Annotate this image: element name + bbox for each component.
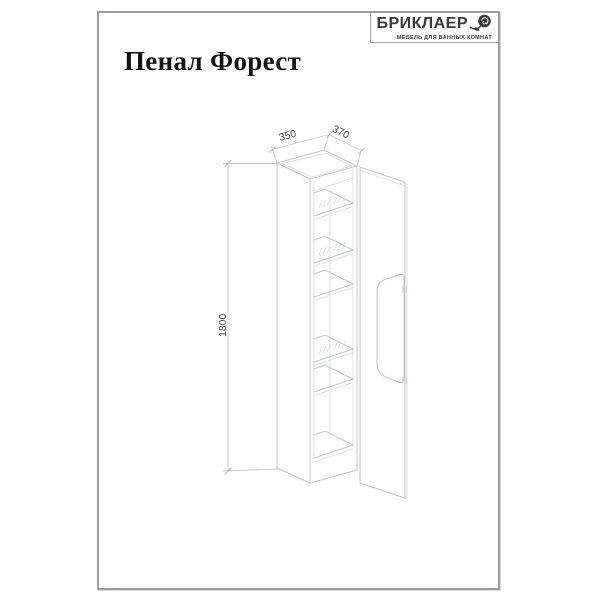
door-outline xyxy=(360,167,405,498)
shelf-thickness-edge xyxy=(314,383,353,396)
cabinet-technical-drawing: 1800 350 370 xyxy=(0,0,600,600)
shelf-surface-edge xyxy=(314,189,353,203)
cabinet-door-open xyxy=(360,167,407,499)
depth-tick-right xyxy=(359,148,365,154)
width-dimension-label: 350 xyxy=(278,128,298,144)
shelf-thickness-edge xyxy=(314,353,353,366)
spec-sheet-page: БРИКЛАЕР МЕБЕЛЬ ДЛЯ ВАННЫХ КОМНАТ Пенал … xyxy=(0,0,600,600)
cabinet-interior-top-edge xyxy=(314,178,353,191)
dimension-depth: 370 xyxy=(329,123,365,166)
solid-shelf-2 xyxy=(314,365,353,396)
shelf-thickness-edge xyxy=(314,288,353,301)
dimension-height: 1800 xyxy=(217,160,279,475)
width-tick-left xyxy=(270,147,276,153)
shelf-front-edge xyxy=(314,250,353,263)
dimension-width: 350 xyxy=(270,128,333,163)
door-top-thickness xyxy=(360,171,404,186)
solid-shelf-1 xyxy=(314,270,353,301)
cabinet-body xyxy=(277,150,357,483)
depth-dimension-label: 370 xyxy=(330,123,351,142)
shelf-thickness-edge xyxy=(314,254,353,267)
shelf-surface-edge xyxy=(314,270,353,284)
cabinet-top-face xyxy=(277,150,357,179)
cabinet-front-bottom-edge xyxy=(310,470,357,483)
shelf-surface-edge xyxy=(314,236,353,250)
shelf-front-edge xyxy=(314,203,353,216)
cabinet-floor-panel xyxy=(314,431,353,462)
height-dimension-label: 1800 xyxy=(217,313,229,337)
glass-shelf-2 xyxy=(314,236,353,267)
floor-front-edge xyxy=(314,445,353,458)
height-extension-bottom xyxy=(223,469,278,471)
shelf-thickness-edge xyxy=(314,207,353,220)
floor-thickness-edge xyxy=(314,449,353,462)
glass-shelf-3 xyxy=(314,335,353,366)
floor-surface-edge xyxy=(314,431,353,445)
shelf-front-edge xyxy=(314,349,353,362)
glass-shelf-1 xyxy=(314,189,353,220)
shelf-surface-edge xyxy=(314,335,353,349)
door-handle-recess xyxy=(377,274,404,382)
shelf-surface-edge xyxy=(314,365,353,379)
shelf-front-edge xyxy=(314,379,353,392)
shelf-front-edge xyxy=(314,284,353,297)
cabinet-top-face-inner xyxy=(282,154,352,178)
cabinet-left-bottom-edge xyxy=(277,468,310,483)
